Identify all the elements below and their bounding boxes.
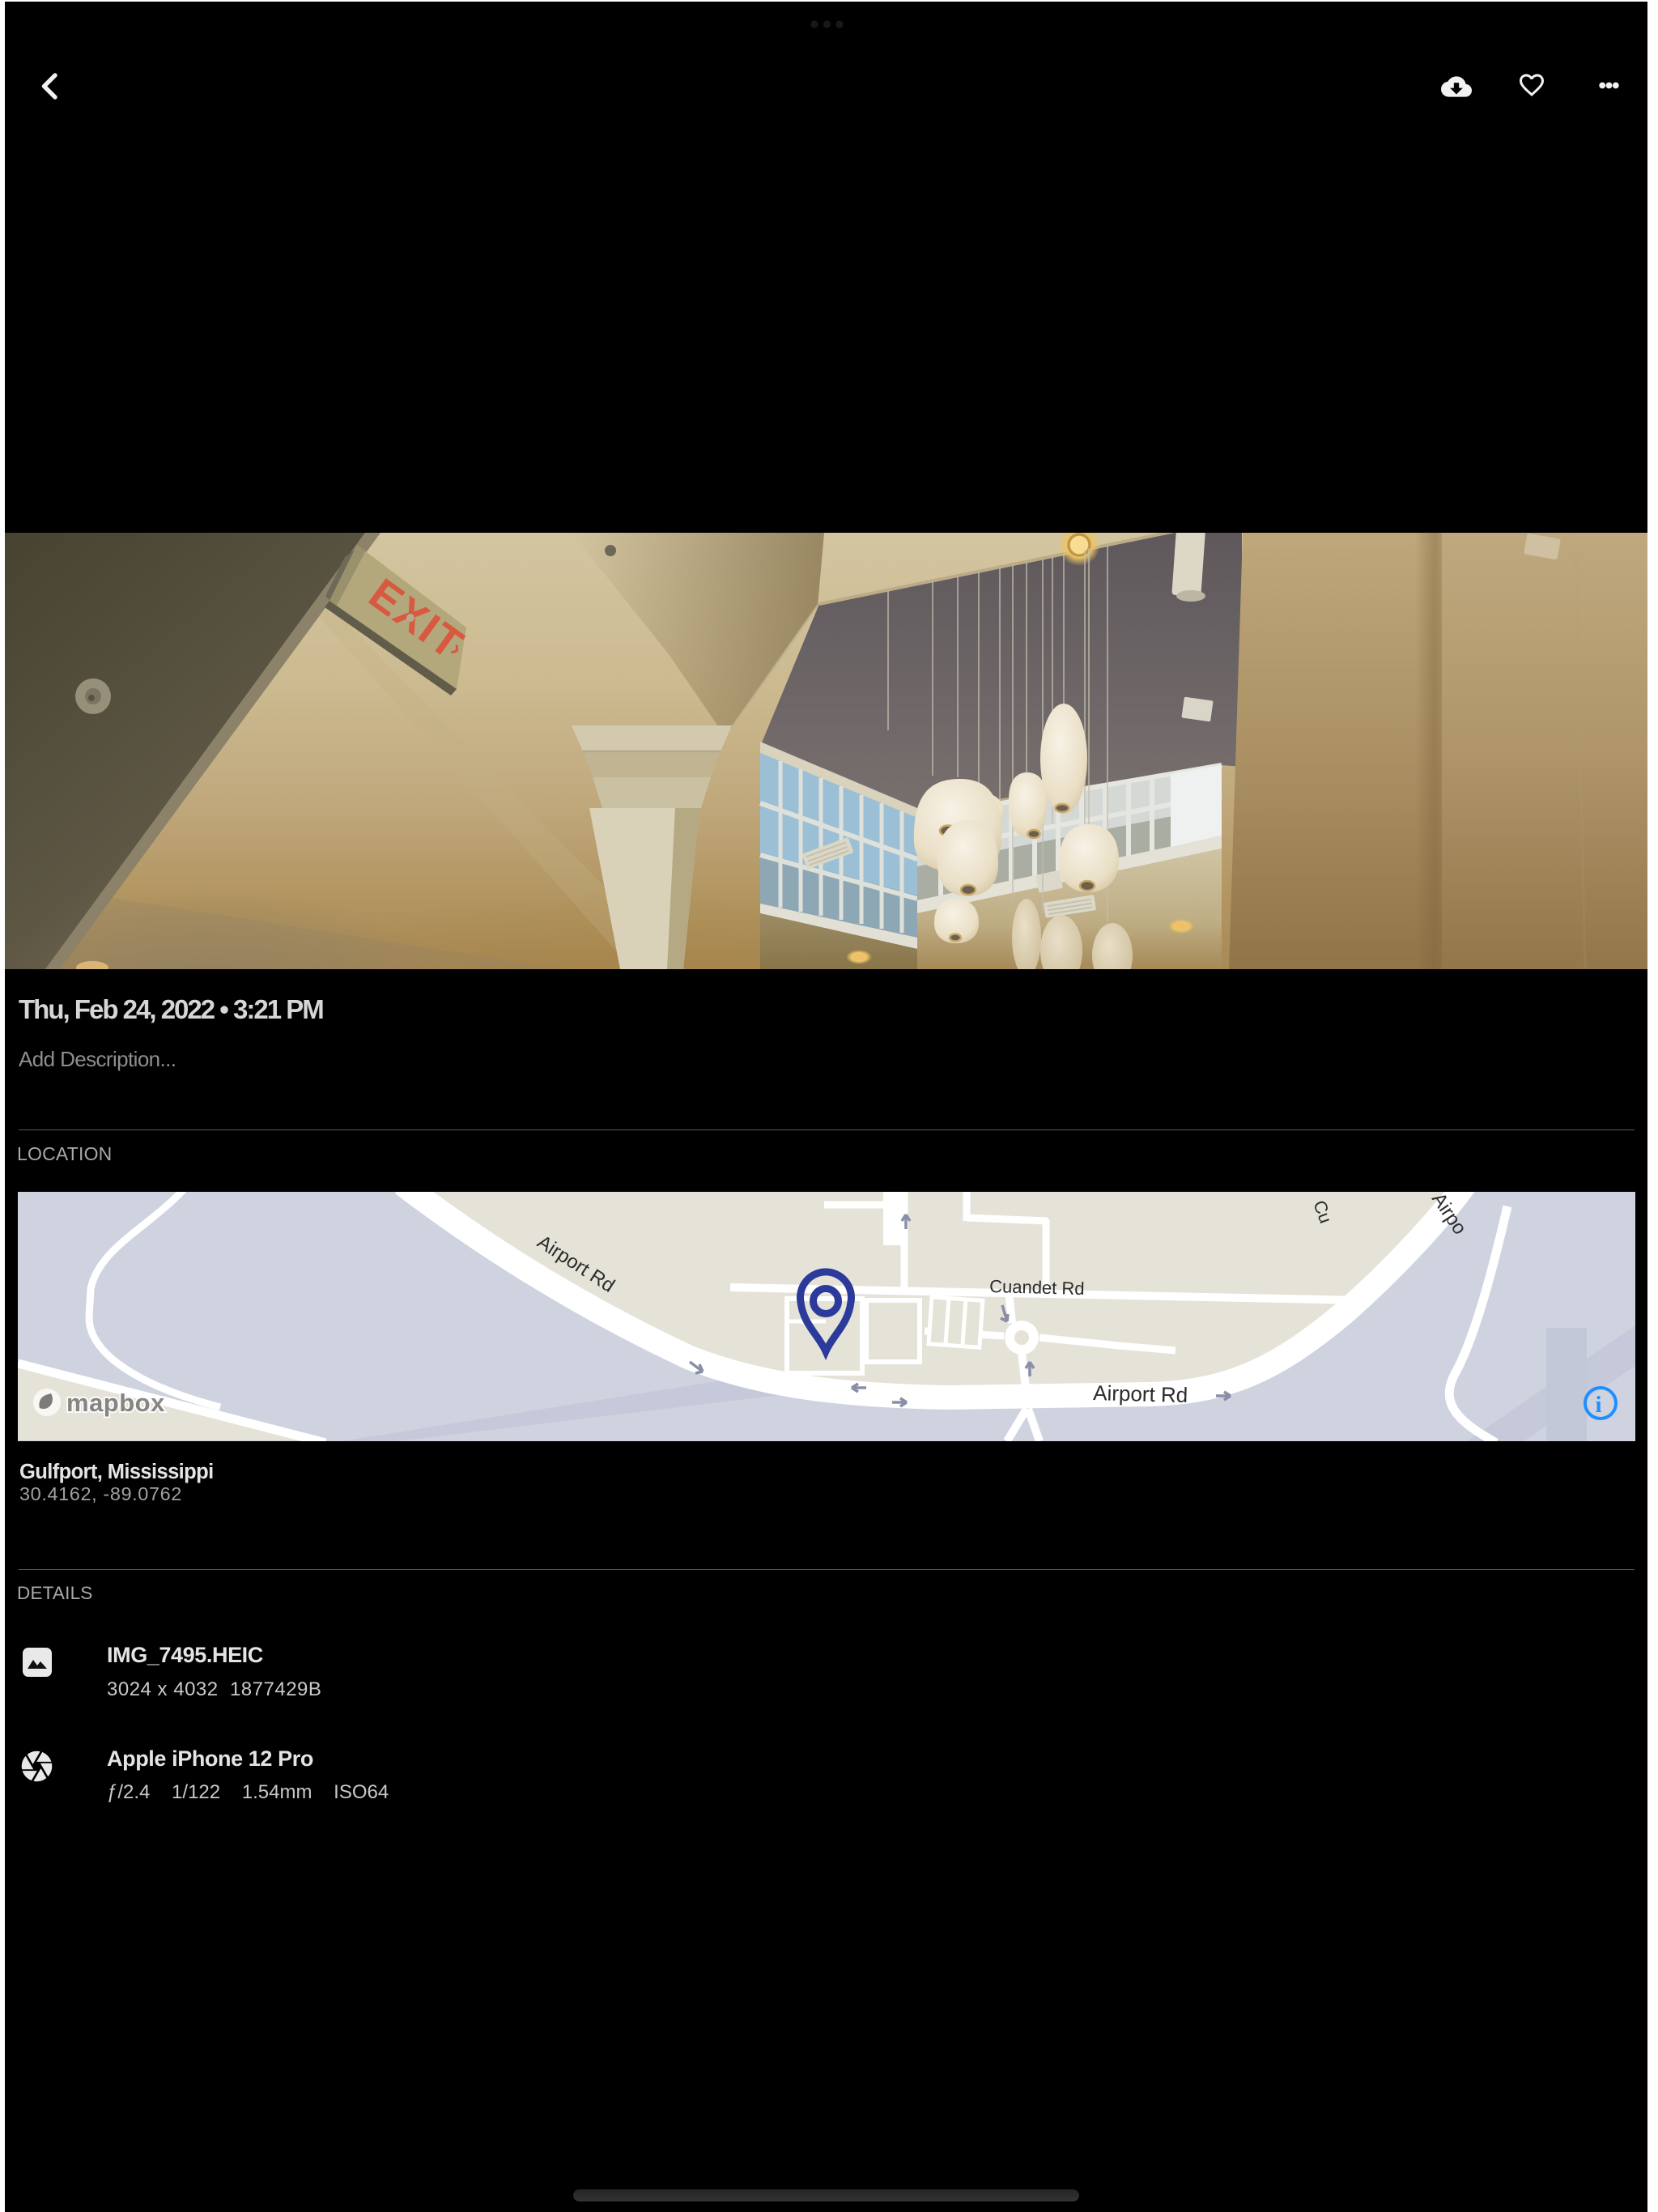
svg-text:mapbox: mapbox: [66, 1389, 165, 1417]
svg-text:Airport Rd: Airport Rd: [1093, 1380, 1188, 1407]
svg-text:Cuandet Rd: Cuandet Rd: [989, 1276, 1085, 1299]
svg-text:i: i: [1596, 1392, 1602, 1418]
